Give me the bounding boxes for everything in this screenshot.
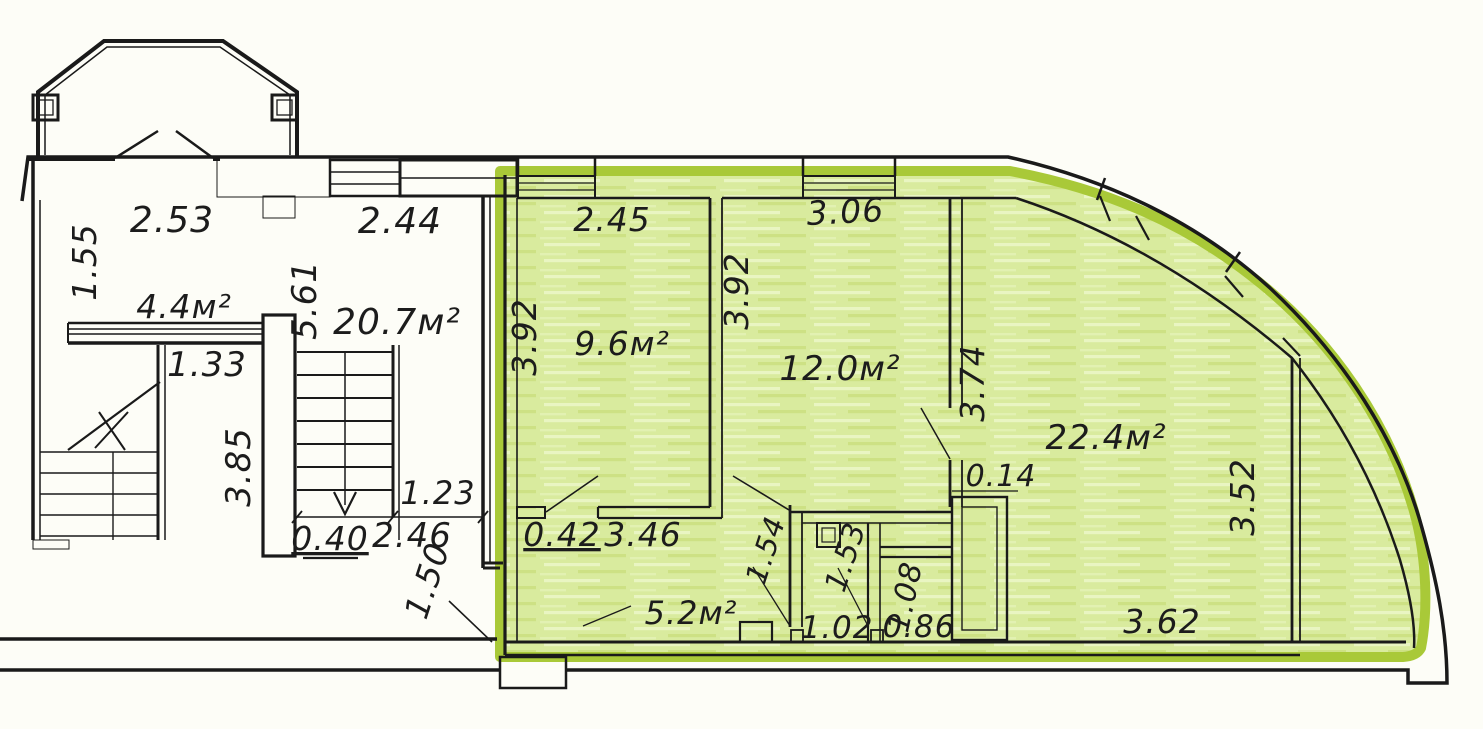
label-dim-2-44: 2.44 <box>358 201 442 242</box>
turret-bay <box>27 41 297 159</box>
label-area-12-0: 12.0м² <box>780 349 901 389</box>
label-dim-1-23: 1.23 <box>400 474 475 512</box>
label-dim-2-53: 2.53 <box>130 200 214 241</box>
label-dim-3-74: 3.74 <box>953 344 992 421</box>
floor-plan-canvas: 2.531.554.4м²5.6120.7м²2.441.333.851.232… <box>0 0 1483 729</box>
label-dim-2-45: 2.45 <box>573 200 650 239</box>
leader-1-50 <box>449 601 492 642</box>
label-dim-3-46: 3.46 <box>604 515 681 554</box>
label-area-4-4: 4.4м² <box>136 287 232 326</box>
label-dim-1-02: 1.02 <box>800 610 873 646</box>
label-dim-0-86: 0.86 <box>882 609 955 645</box>
label-area-22-4: 22.4м² <box>1046 418 1167 458</box>
label-dim-0-14: 0.14 <box>966 459 1037 494</box>
label-dim-3-92-left: 3.92 <box>505 298 544 375</box>
stair-direction-line <box>68 382 160 450</box>
label-dim-5-61: 5.61 <box>285 260 325 340</box>
label-dim-3-62: 3.62 <box>1123 602 1200 641</box>
label-dim-1-33: 1.33 <box>167 345 247 385</box>
chimney-right <box>272 95 297 120</box>
label-dim-3-06: 3.06 <box>806 190 885 233</box>
label-area-20-7: 20.7м² <box>333 302 461 343</box>
label-dim-3-92-mid: 3.92 <box>717 252 756 329</box>
label-dim-3-85: 3.85 <box>219 427 259 507</box>
label-dim-0-40: 0.40 <box>291 519 368 558</box>
label-dim-1-55: 1.55 <box>65 223 104 300</box>
window-2-44 <box>330 160 400 196</box>
label-dim-3-52: 3.52 <box>1223 458 1262 535</box>
label-area-9-6: 9.6м² <box>574 324 670 363</box>
floor-plan-page: 2.531.554.4м²5.6120.7м²2.441.333.851.232… <box>0 0 1483 729</box>
label-area-5-2: 5.2м² <box>645 594 738 632</box>
label-dim-0-42: 0.42 <box>523 515 600 554</box>
